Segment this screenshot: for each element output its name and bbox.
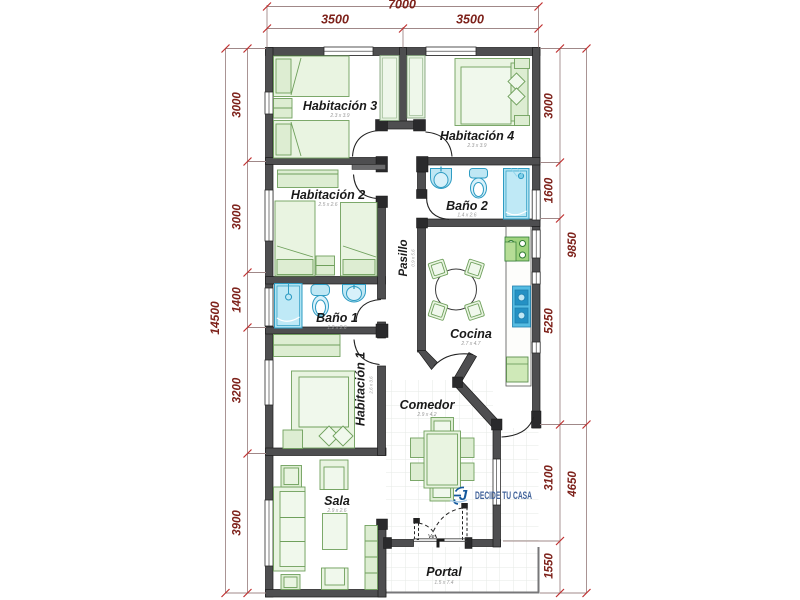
svg-text:7000: 7000: [388, 0, 416, 12]
svg-text:4650: 4650: [567, 471, 579, 498]
svg-text:2.7 x 4.7: 2.7 x 4.7: [460, 341, 480, 347]
svg-text:3100: 3100: [544, 465, 556, 491]
svg-text:2.3 x 3.9: 2.3 x 3.9: [466, 143, 486, 149]
svg-text:1550: 1550: [544, 553, 556, 579]
svg-text:1.2 x 2.6: 1.2 x 2.6: [327, 325, 346, 331]
svg-text:1400: 1400: [232, 287, 244, 313]
svg-text:DECIDE TU CASA: DECIDE TU CASA: [475, 490, 532, 502]
svg-text:1600: 1600: [544, 177, 556, 203]
svg-text:2.9 x 2.6: 2.9 x 2.6: [326, 508, 346, 514]
svg-text:Cocina: Cocina: [450, 327, 492, 341]
svg-text:Sala: Sala: [324, 494, 350, 508]
svg-text:5250: 5250: [544, 308, 556, 334]
svg-text:3000: 3000: [232, 92, 244, 118]
svg-text:2.9 x 4.2: 2.9 x 4.2: [416, 412, 436, 418]
svg-text:2.6 x 3.6: 2.6 x 3.6: [369, 376, 374, 395]
svg-text:3000: 3000: [232, 204, 244, 230]
svg-text:3900: 3900: [232, 510, 244, 536]
svg-text:Habitación 3: Habitación 3: [303, 99, 377, 113]
svg-text:Baño 1: Baño 1: [316, 311, 358, 325]
svg-text:1.5 x 7.4: 1.5 x 7.4: [434, 580, 453, 586]
svg-text:3500: 3500: [321, 13, 349, 27]
svg-text:Ve: Ve: [428, 534, 435, 540]
svg-text:3500: 3500: [456, 13, 484, 27]
svg-text:2.3 x 3.9: 2.3 x 3.9: [329, 113, 349, 119]
svg-text:1.4 x 2.6: 1.4 x 2.6: [457, 213, 476, 219]
svg-text:Pasillo: Pasillo: [398, 239, 410, 276]
svg-text:Comedor: Comedor: [400, 398, 456, 412]
svg-text:Baño 2: Baño 2: [446, 199, 488, 213]
svg-text:Habitación 1: Habitación 1: [354, 352, 368, 426]
svg-text:3200: 3200: [232, 377, 244, 403]
svg-text:0.9 x 5.6: 0.9 x 5.6: [411, 249, 416, 267]
svg-text:9850: 9850: [567, 232, 579, 258]
svg-text:Habitación 4: Habitación 4: [440, 129, 514, 143]
svg-text:2.5 x 2.6: 2.5 x 2.6: [317, 202, 337, 208]
svg-text:3000: 3000: [544, 93, 556, 119]
svg-text:Portal: Portal: [426, 565, 462, 579]
svg-text:Habitación 2: Habitación 2: [291, 188, 365, 202]
svg-text:14500: 14500: [208, 301, 222, 335]
